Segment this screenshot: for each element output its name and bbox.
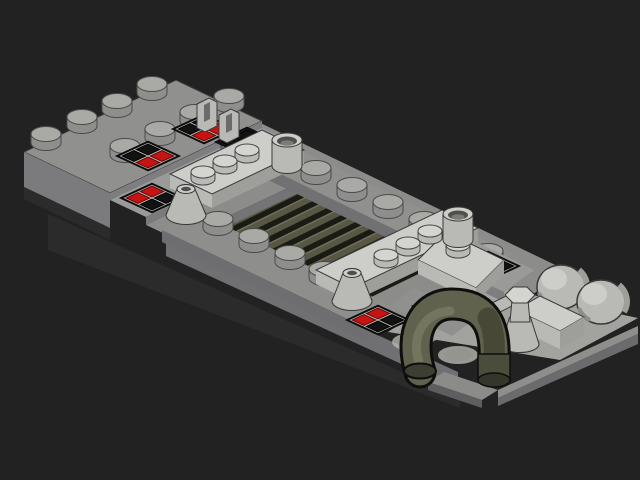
- hose-foot-right-end: [478, 373, 510, 387]
- 3d-viewport[interactable]: [0, 0, 640, 480]
- open-tube-innerwall: [452, 214, 465, 220]
- stud-white: [396, 237, 420, 249]
- cone-hole: [181, 187, 191, 191]
- stud: [214, 89, 244, 104]
- stud-white: [374, 249, 398, 261]
- stud: [31, 127, 61, 142]
- clip-bracket-notch: [204, 102, 210, 122]
- stud-white: [213, 155, 237, 167]
- open-tube-innerwall: [281, 140, 294, 146]
- stud: [145, 122, 175, 137]
- dome-highlight: [581, 283, 607, 305]
- stud: [137, 77, 167, 92]
- stud: [373, 195, 403, 210]
- stud: [203, 212, 233, 227]
- stud: [239, 229, 269, 244]
- stud: [67, 110, 97, 125]
- stud-white: [235, 144, 259, 156]
- stud: [102, 94, 132, 109]
- dome-highlight: [541, 268, 567, 290]
- stud: [337, 178, 367, 193]
- clip-bracket-notch: [226, 113, 232, 133]
- stud-white: [191, 166, 215, 178]
- stud: [275, 246, 305, 261]
- ghost-cylinder-hole: [444, 349, 472, 361]
- hose-shade: [488, 318, 494, 358]
- stud-white: [418, 225, 442, 237]
- stud: [301, 161, 331, 176]
- hose-foot-left: [404, 364, 436, 379]
- cone-hole: [347, 271, 357, 275]
- lego-model-render: [0, 0, 640, 480]
